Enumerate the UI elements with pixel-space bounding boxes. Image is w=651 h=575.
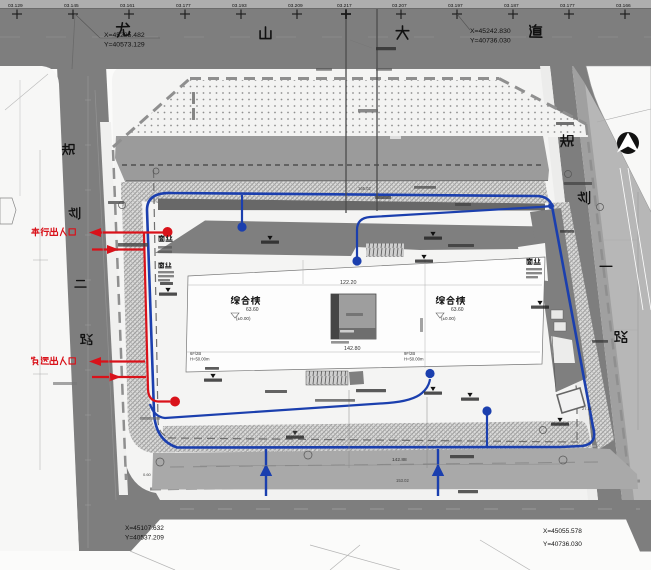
svg-text:03.166: 03.166 [616, 3, 631, 9]
svg-text:X=45285.482: X=45285.482 [104, 32, 145, 39]
svg-text:9F/2B: 9F/2B [404, 351, 415, 356]
svg-text:Y=40736.030: Y=40736.030 [470, 38, 511, 45]
svg-text:03.177: 03.177 [176, 3, 191, 9]
svg-text:X=45242.830: X=45242.830 [470, 28, 511, 35]
svg-text:03.177: 03.177 [560, 3, 575, 9]
svg-text:63.60: 63.60 [246, 307, 259, 313]
svg-text:122.20: 122.20 [340, 280, 357, 286]
svg-text:03.207: 03.207 [392, 3, 407, 9]
svg-text:153.02: 153.02 [396, 478, 409, 483]
svg-text:142.80: 142.80 [344, 346, 361, 352]
svg-text:H=50.00m: H=50.00m [190, 357, 210, 362]
svg-text:142.88: 142.88 [392, 457, 407, 463]
svg-text:X=45107.632: X=45107.632 [125, 525, 164, 532]
svg-text:Y=40537.209: Y=40537.209 [125, 535, 164, 542]
svg-text:165.02: 165.02 [358, 186, 371, 191]
svg-text:03.129: 03.129 [8, 3, 23, 9]
svg-text:(±0.00): (±0.00) [441, 316, 456, 321]
svg-text:03.197: 03.197 [448, 3, 463, 9]
svg-text:63.60: 63.60 [451, 307, 464, 313]
svg-text:6F/2B: 6F/2B [190, 351, 201, 356]
svg-text:03.187: 03.187 [504, 3, 519, 9]
svg-text:03.161: 03.161 [120, 3, 135, 9]
svg-text:03.193: 03.193 [232, 3, 247, 9]
svg-text:Y=40573.129: Y=40573.129 [104, 42, 145, 49]
svg-text:(±0.00): (±0.00) [236, 316, 251, 321]
svg-text:X=45055.578: X=45055.578 [543, 528, 582, 535]
svg-text:0.60: 0.60 [143, 472, 152, 477]
svg-text:03.209: 03.209 [288, 3, 303, 9]
svg-text:H=50.00m: H=50.00m [404, 357, 424, 362]
svg-text:03.145: 03.145 [64, 3, 79, 9]
svg-text:03.217: 03.217 [337, 3, 352, 9]
svg-text:Y=40736.030: Y=40736.030 [543, 541, 582, 548]
